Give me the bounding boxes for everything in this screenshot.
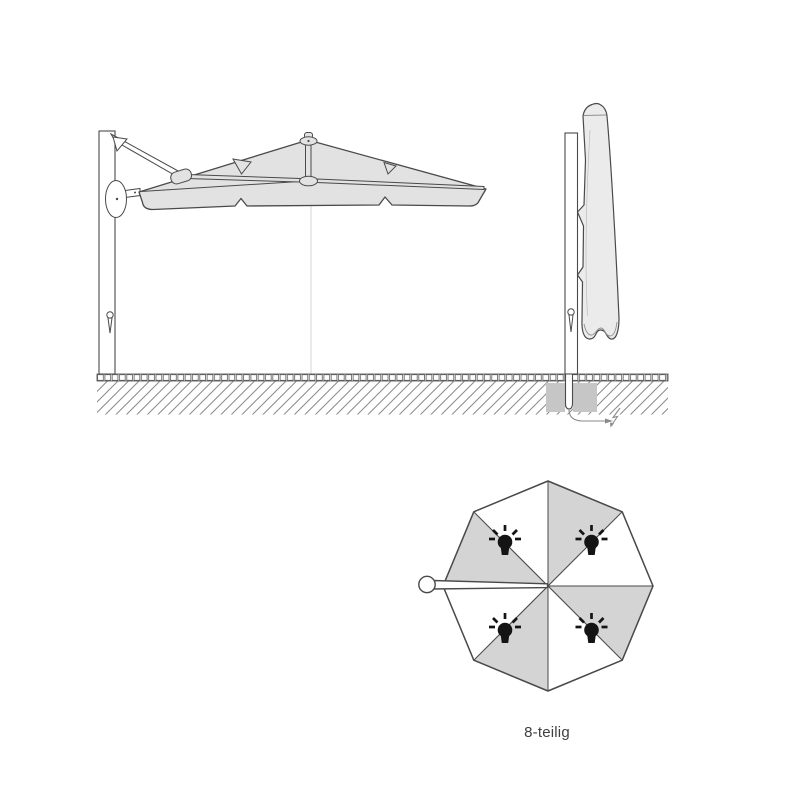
top-view-canopy: 8-teilig bbox=[419, 481, 653, 741]
pivot-dot bbox=[307, 140, 309, 142]
mast-pole bbox=[99, 131, 115, 374]
parasol-technical-drawing: 8-teilig bbox=[0, 0, 800, 800]
mast-ground-sleeve bbox=[566, 374, 573, 409]
mast-top-circle bbox=[419, 576, 435, 592]
pivot-dot bbox=[134, 192, 136, 194]
cover-cap-seam bbox=[584, 115, 607, 116]
paving-band bbox=[97, 374, 668, 381]
ground-section bbox=[97, 374, 668, 428]
cable-arrow bbox=[605, 419, 613, 424]
side-view-closed-parasol bbox=[565, 104, 619, 375]
foundation-block-left bbox=[546, 383, 565, 412]
segments-label: 8-teilig bbox=[524, 724, 570, 741]
center-tube bbox=[306, 144, 312, 179]
foundation-block-right bbox=[573, 383, 597, 412]
closed-canopy-cover bbox=[578, 104, 620, 340]
pivot-dot bbox=[116, 198, 118, 200]
lower-hub bbox=[300, 176, 318, 186]
drawing-canvas: 8-teilig bbox=[0, 0, 800, 800]
mast-pole-closed bbox=[565, 133, 578, 374]
side-view-open-parasol bbox=[99, 131, 486, 374]
